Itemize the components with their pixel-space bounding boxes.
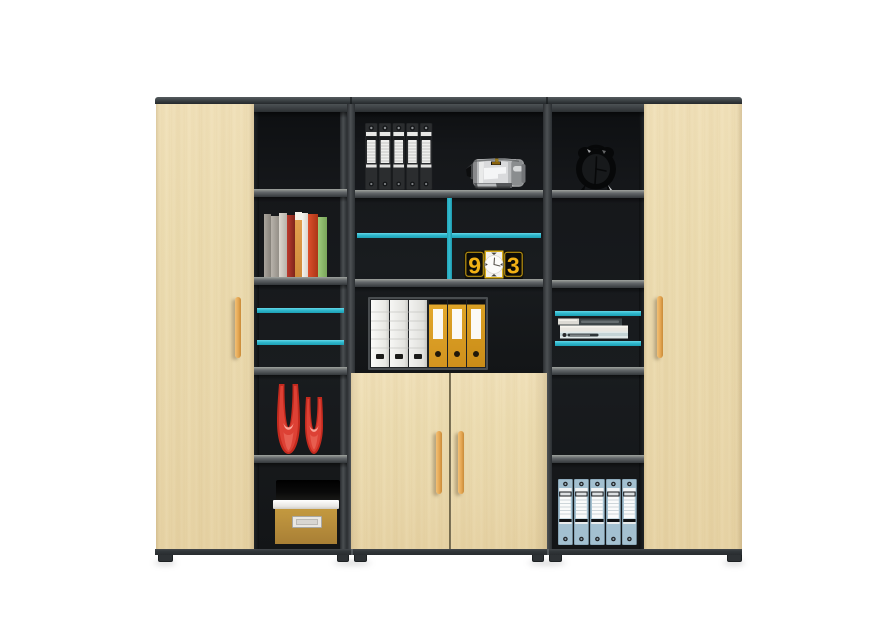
svg-text:9: 9 <box>468 253 481 279</box>
svg-text:3: 3 <box>507 253 520 279</box>
